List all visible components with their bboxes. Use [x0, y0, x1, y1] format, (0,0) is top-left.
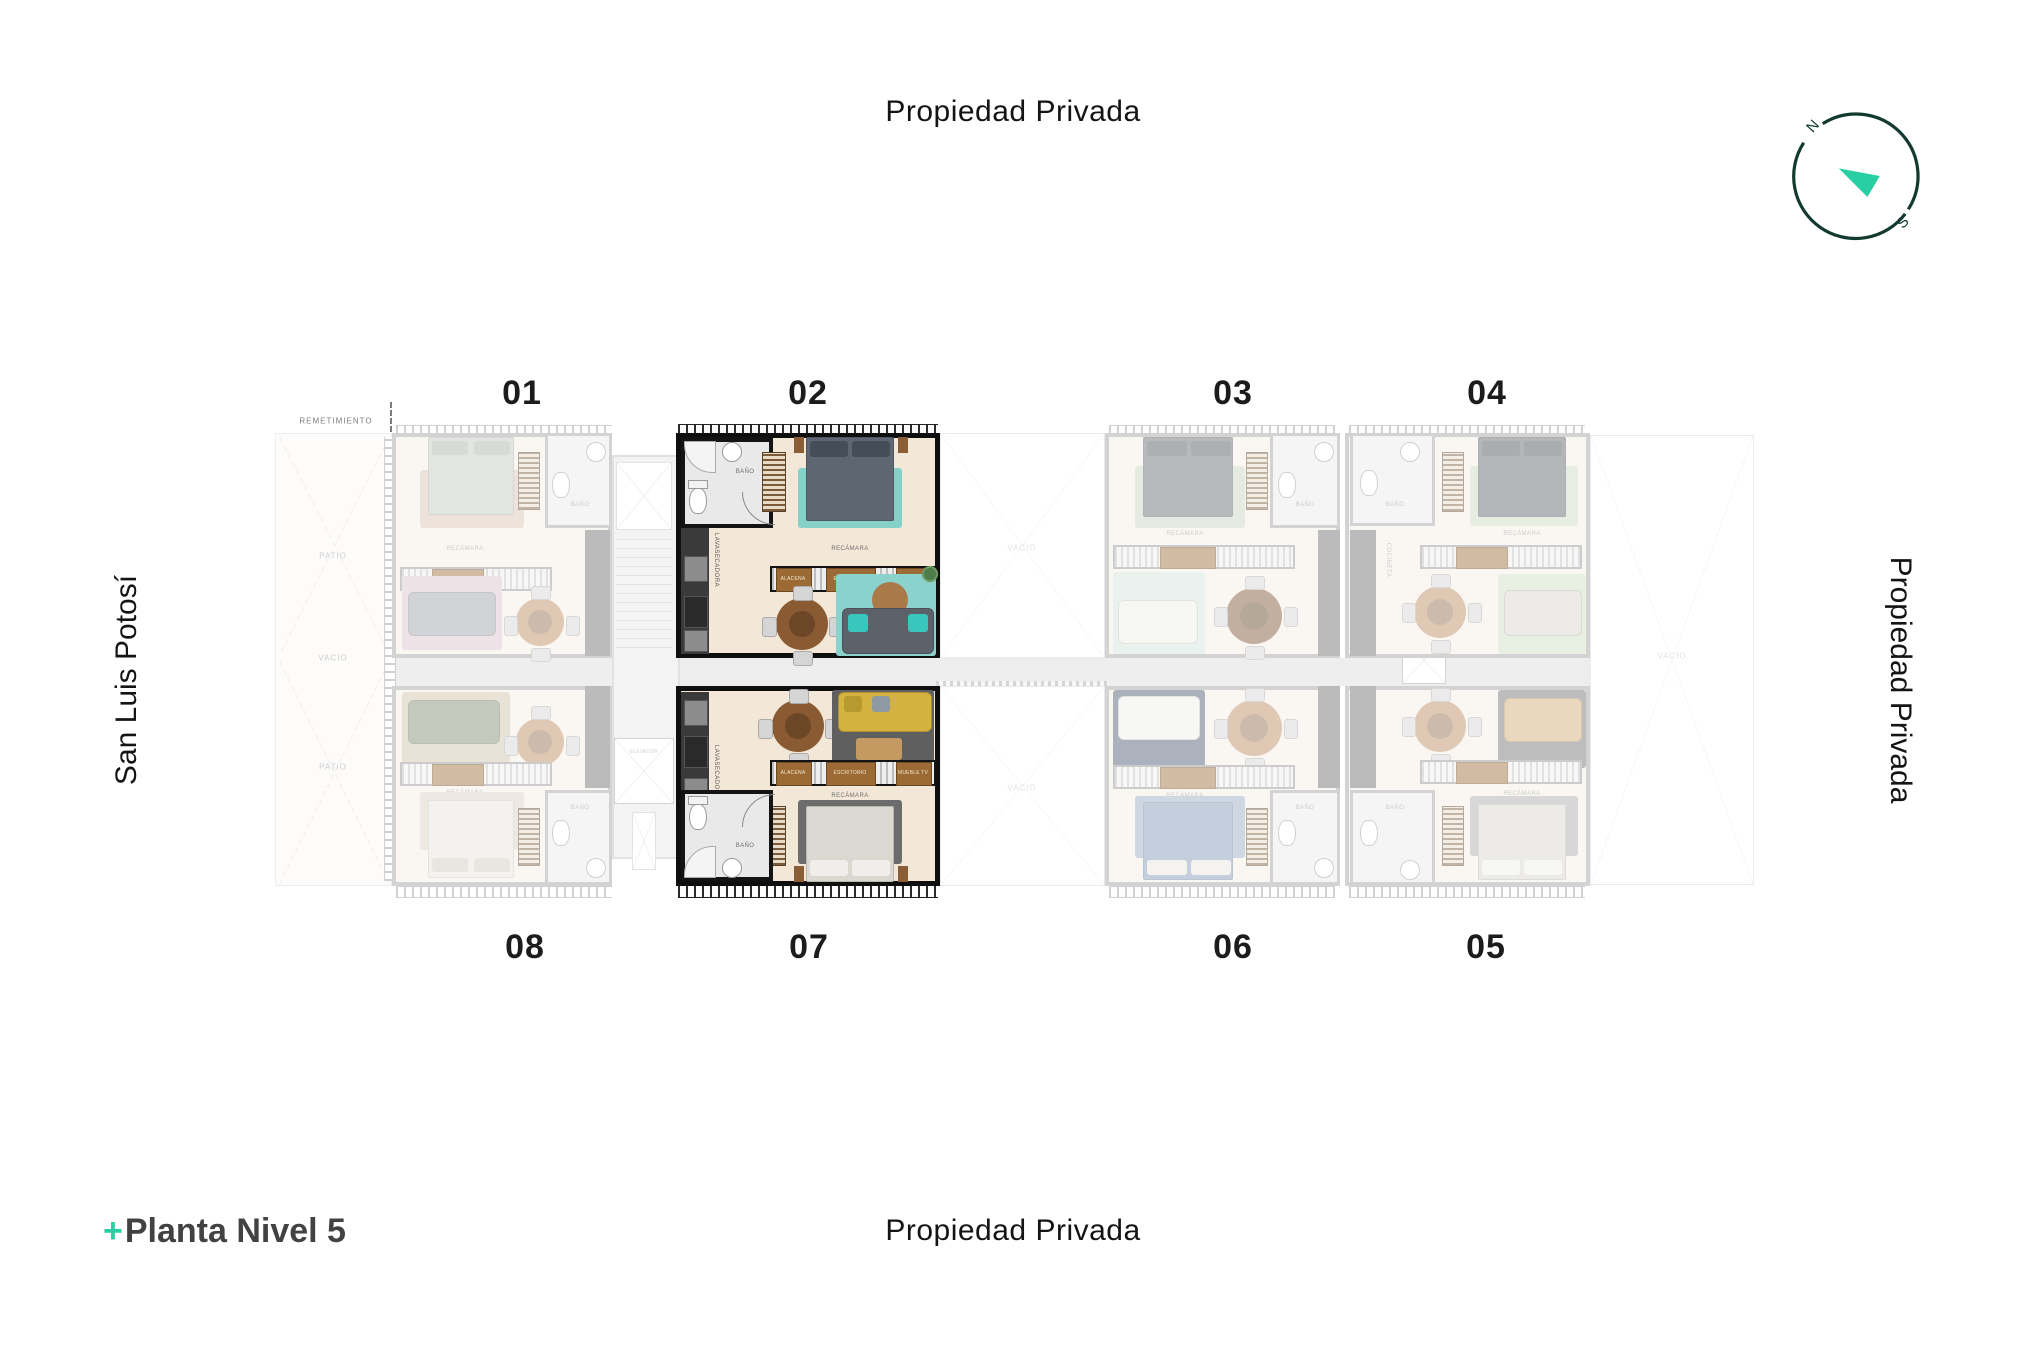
level-title-text: Planta Nivel 5 [125, 1212, 346, 1250]
chair [789, 689, 809, 704]
alacena-label: ALACENA [781, 770, 806, 776]
plant [922, 566, 938, 582]
pillow [810, 860, 848, 876]
nightstand [794, 437, 804, 453]
sink [722, 858, 742, 878]
chair [793, 651, 813, 666]
washer-dryer [684, 556, 708, 582]
pillow [852, 860, 890, 876]
fridge [684, 630, 708, 652]
toilet [689, 804, 707, 830]
dining-table [776, 598, 828, 650]
dining-table [772, 700, 824, 752]
sofa-cushion [872, 696, 890, 712]
sofa-cushion [908, 614, 928, 632]
recamara-label: RECÁMARA [831, 793, 868, 799]
lavasecadora-label: LAVASECADORA [713, 533, 719, 587]
recamara-label: RECÁMARA [831, 546, 868, 552]
chair [793, 586, 813, 601]
table-top [785, 713, 811, 739]
window-strip-highlighted [678, 884, 938, 898]
nightstand [898, 866, 908, 882]
escritorio-label: ESCRITORIO [833, 770, 866, 776]
sofa-cushion [848, 614, 868, 632]
coffee-table [856, 738, 902, 760]
bano-label: BAÑO [736, 469, 755, 475]
floor-plan-page: Propiedad Privada Propiedad Privada San … [0, 0, 2032, 1355]
nightstand [898, 437, 908, 453]
pillow [852, 441, 890, 457]
sofa-cushion [844, 696, 862, 712]
nightstand [794, 866, 804, 882]
fridge [684, 700, 708, 726]
table-top [789, 611, 815, 637]
mueble-tv-label: MUEBLE TV [898, 770, 928, 776]
stove [684, 596, 708, 628]
highlighted-plan-layer: BAÑO RECÁMARA ALACENA ESCRITORIO MUEBLE … [0, 0, 2032, 1355]
closet-louver-door [762, 452, 786, 512]
plus-icon: + [103, 1212, 123, 1250]
bano-label: BAÑO [736, 843, 755, 849]
level-title: +Planta Nivel 5 [103, 1212, 346, 1251]
chair [762, 617, 777, 637]
chair [758, 719, 773, 739]
pillow [810, 441, 848, 457]
alacena-label: ALACENA [781, 576, 806, 582]
sink [722, 442, 742, 462]
stove [684, 736, 708, 768]
toilet [689, 488, 707, 514]
